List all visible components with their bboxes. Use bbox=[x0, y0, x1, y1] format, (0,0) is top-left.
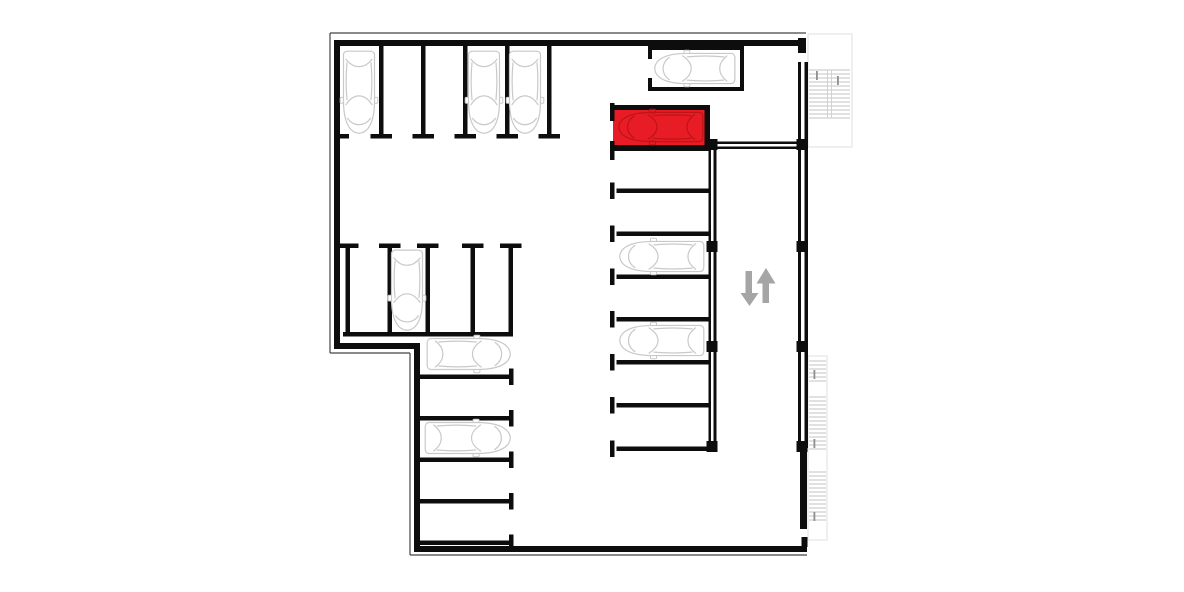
parking-divider bbox=[343, 332, 513, 337]
parking-divider bbox=[418, 375, 510, 380]
arrow-head-down bbox=[741, 293, 759, 306]
car-topview bbox=[425, 419, 510, 457]
car-line bbox=[344, 51, 375, 133]
car-line bbox=[510, 51, 541, 133]
parking-divider bbox=[418, 416, 510, 421]
divider-cap bbox=[509, 493, 514, 510]
divider-cap bbox=[413, 134, 435, 139]
exterior-wall bbox=[802, 537, 808, 547]
structural-column bbox=[797, 441, 808, 452]
stairs-right bbox=[808, 356, 827, 540]
stair-mark bbox=[814, 439, 816, 448]
exterior-wall bbox=[798, 62, 801, 448]
exterior-wall bbox=[798, 38, 806, 53]
car-line bbox=[427, 339, 510, 370]
car-topview bbox=[655, 50, 735, 86]
floor-plan bbox=[0, 0, 1184, 592]
ramp-wall bbox=[717, 147, 798, 150]
exterior-wall bbox=[414, 343, 420, 552]
ramp-wall bbox=[709, 140, 712, 446]
parking-divider bbox=[509, 246, 514, 336]
divider-cap bbox=[497, 134, 519, 139]
divider-cap bbox=[610, 354, 615, 371]
car-topview bbox=[465, 51, 503, 133]
parking-divider bbox=[421, 46, 426, 136]
car-line bbox=[620, 241, 704, 271]
structural-column bbox=[797, 241, 808, 252]
car-line bbox=[469, 51, 500, 133]
arrow-head-up bbox=[757, 268, 776, 284]
divider-cap bbox=[337, 244, 359, 249]
parking-divider bbox=[617, 317, 709, 322]
divider-cap bbox=[610, 397, 615, 414]
parking-divider bbox=[617, 403, 709, 408]
parking-divider bbox=[505, 46, 510, 136]
divider-cap bbox=[610, 269, 615, 286]
parking-divider bbox=[463, 46, 468, 136]
parking-floorplan-viewport bbox=[0, 0, 1184, 592]
divider-cap bbox=[610, 183, 615, 200]
arrow-shaft-up bbox=[763, 282, 770, 303]
parking-bay-wall bbox=[740, 46, 744, 91]
parking-divider bbox=[471, 246, 476, 336]
structural-column bbox=[707, 241, 718, 252]
car-topview bbox=[340, 51, 378, 133]
car-topview bbox=[506, 51, 544, 133]
highlighted-space-border bbox=[610, 141, 615, 160]
stair-mark bbox=[816, 71, 818, 80]
parking-divider bbox=[418, 499, 510, 504]
parking-divider bbox=[379, 46, 384, 136]
divider-cap bbox=[509, 535, 514, 552]
parking-divider bbox=[617, 275, 709, 280]
structural-column-group bbox=[707, 139, 808, 452]
divider-cap bbox=[379, 244, 401, 249]
divider-cap bbox=[539, 134, 561, 139]
parking-divider bbox=[426, 246, 431, 336]
exterior-wall bbox=[414, 546, 807, 552]
highlighted-space-border bbox=[705, 105, 711, 151]
highlighted-space-border bbox=[612, 105, 709, 110]
arrow-shaft-down bbox=[746, 271, 753, 294]
ramp-wall bbox=[714, 140, 717, 446]
structural-column bbox=[797, 341, 808, 352]
parking-bay-wall bbox=[648, 78, 652, 91]
parking-bay-wall bbox=[648, 87, 744, 91]
divider-cap bbox=[509, 410, 514, 427]
ramp-arrow-up bbox=[757, 268, 776, 303]
divider-cap bbox=[462, 244, 484, 249]
car-topview bbox=[620, 238, 704, 274]
divider-cap bbox=[500, 244, 522, 249]
parking-divider bbox=[617, 447, 709, 452]
stairs-top-right bbox=[808, 34, 852, 147]
car-line bbox=[620, 325, 704, 355]
exterior-wall bbox=[334, 40, 340, 349]
divider-cap bbox=[610, 441, 615, 458]
divider-cap bbox=[610, 311, 615, 328]
stair-mark bbox=[814, 512, 816, 521]
highlighted-space-border bbox=[610, 103, 615, 121]
car-topview bbox=[427, 335, 510, 373]
structural-column bbox=[797, 139, 808, 150]
parking-divider bbox=[617, 232, 709, 237]
divider-cap bbox=[509, 369, 514, 386]
parking-divider bbox=[547, 46, 552, 136]
car-line bbox=[655, 53, 735, 83]
car-topview bbox=[620, 322, 704, 358]
divider-cap bbox=[509, 452, 514, 469]
highlighted-space-border bbox=[612, 145, 709, 151]
parking-divider bbox=[346, 246, 351, 336]
parking-divider bbox=[418, 458, 510, 463]
divider-cap bbox=[610, 226, 615, 243]
parking-divider bbox=[418, 541, 510, 546]
exterior-wall bbox=[334, 343, 420, 349]
divider-cap bbox=[340, 134, 349, 139]
divider-cap bbox=[371, 134, 393, 139]
divider-cap bbox=[455, 134, 477, 139]
exterior-wall bbox=[805, 62, 809, 448]
car-line bbox=[392, 250, 423, 330]
parking-bay-wall bbox=[648, 46, 652, 59]
car-line bbox=[425, 423, 510, 454]
ramp-arrow-down bbox=[741, 271, 759, 306]
highlighted-parking-space[interactable] bbox=[613, 109, 705, 146]
exterior-wall bbox=[800, 450, 807, 529]
parking-bay-wall bbox=[648, 46, 744, 50]
parking-divider bbox=[617, 360, 709, 365]
structural-column bbox=[707, 341, 718, 352]
parking-divider bbox=[617, 189, 709, 194]
ramp-wall bbox=[717, 142, 798, 145]
divider-cap bbox=[417, 244, 439, 249]
stair-mark bbox=[837, 76, 839, 85]
stair-mark bbox=[814, 370, 816, 379]
exterior-wall bbox=[334, 40, 806, 46]
car-topview bbox=[388, 250, 426, 330]
